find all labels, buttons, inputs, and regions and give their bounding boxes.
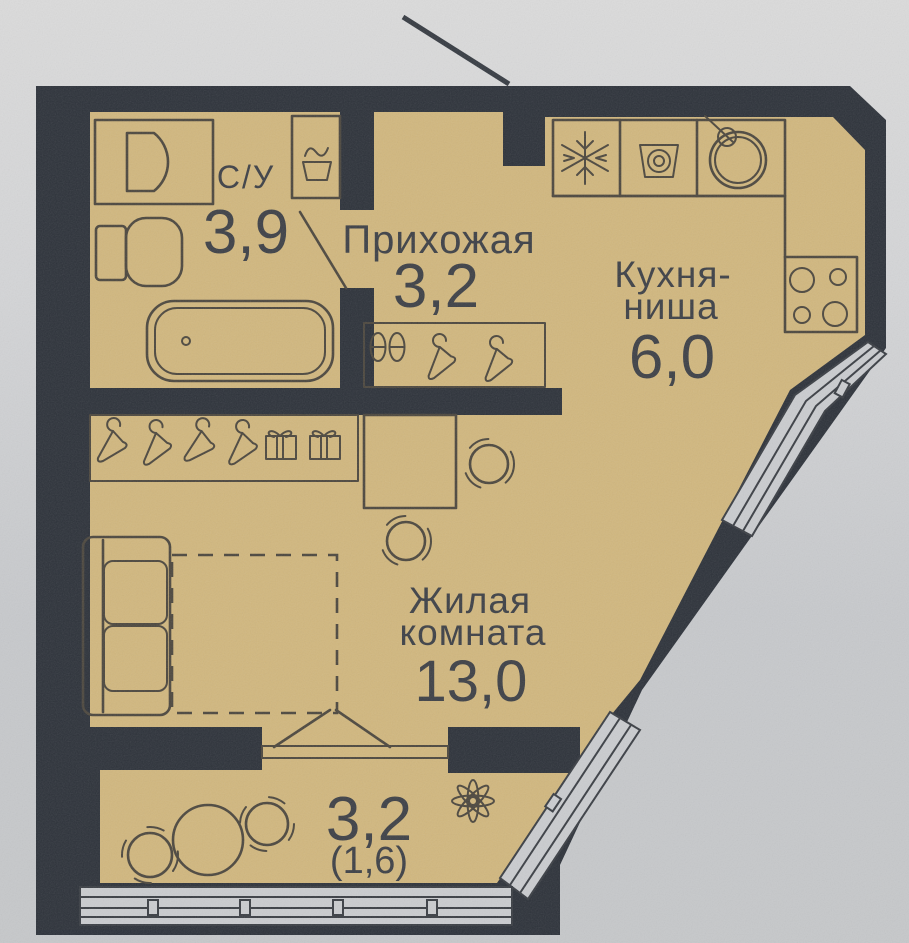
floorplan-svg: С/У 3,9 Прихожая 3,2 Кухня- ниша 6,0 Жил… <box>0 0 909 943</box>
photo-grain-overlay <box>0 0 909 943</box>
floorplan-photo: С/У 3,9 Прихожая 3,2 Кухня- ниша 6,0 Жил… <box>0 0 909 943</box>
